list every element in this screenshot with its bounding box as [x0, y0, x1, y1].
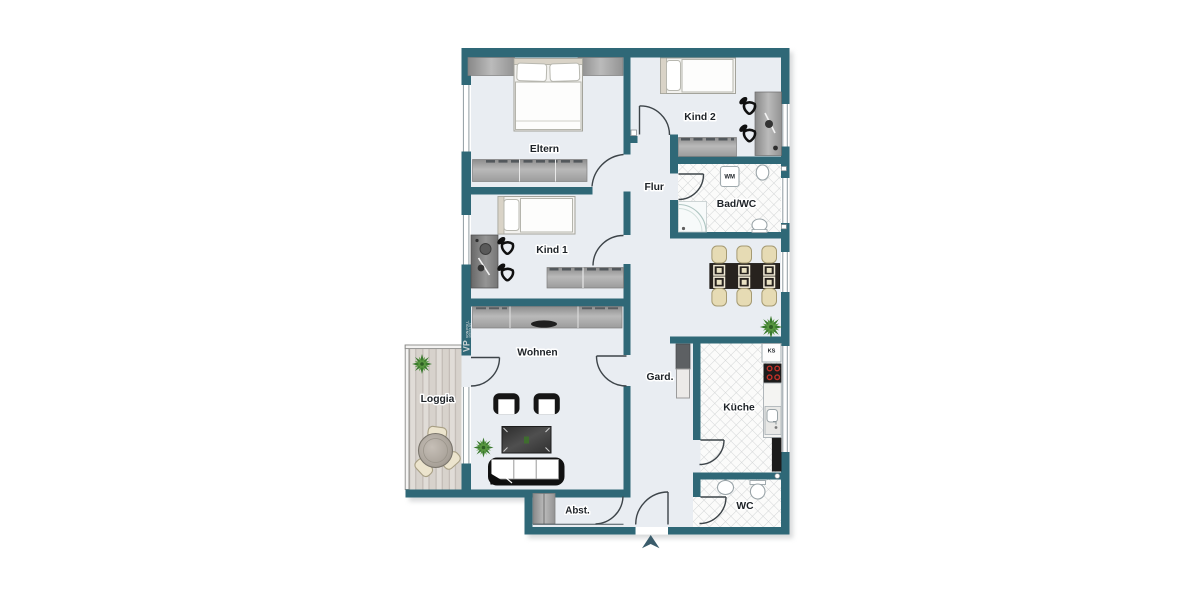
svg-text:KS: KS — [768, 349, 776, 355]
svg-text:IMMOBILIEN: IMMOBILIEN — [468, 323, 472, 338]
svg-text:Wohnen: Wohnen — [517, 348, 557, 359]
svg-text:Küche: Küche — [723, 403, 755, 414]
svg-text:WM: WM — [724, 175, 735, 181]
svg-text:Bad/WC: Bad/WC — [717, 199, 757, 210]
svg-text:VP: VP — [461, 340, 471, 352]
svg-text:WC: WC — [736, 501, 754, 512]
svg-text:Kind 1: Kind 1 — [536, 245, 568, 256]
svg-text:Kind 2: Kind 2 — [684, 112, 716, 123]
svg-text:Loggia: Loggia — [421, 394, 455, 405]
svg-text:Gard.: Gard. — [647, 372, 674, 383]
svg-text:Abst.: Abst. — [565, 506, 590, 517]
svg-text:Flur: Flur — [644, 182, 663, 193]
svg-text:Eltern: Eltern — [530, 144, 559, 155]
